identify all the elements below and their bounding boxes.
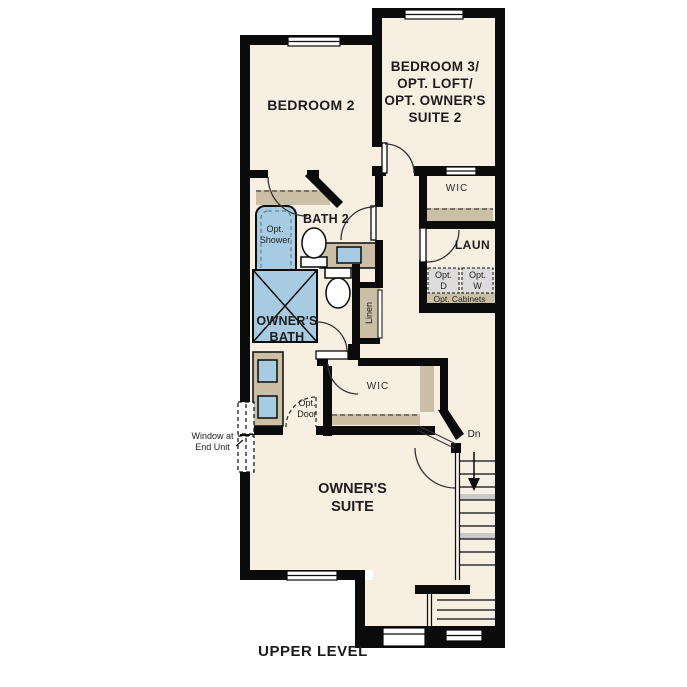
opt-door-label: Opt. Door (290, 398, 324, 420)
wall-wic-top (358, 358, 448, 366)
owners-bath-label: OWNER'S BATH (250, 313, 324, 345)
window-end-unit-label: Window at End Unit (185, 431, 240, 453)
owners-sink-2 (258, 396, 277, 418)
wic-shelf-right (420, 364, 434, 412)
window-landing-1 (383, 628, 425, 646)
wic-shelf-bottom (332, 414, 420, 425)
owners-sink-1 (258, 360, 277, 382)
window-end-unit-upper (238, 402, 254, 434)
bedroom3-label: BEDROOM 3/ OPT. LOFT/ OPT. OWNER'S SUITE… (378, 58, 492, 126)
stairs-down-label: Dn (462, 429, 486, 440)
window-bedroom2-top (288, 37, 340, 46)
wic-upper-opening (446, 167, 476, 175)
window-os-bottom (287, 571, 337, 580)
wall-wic-right (440, 358, 448, 414)
owners-suite-label: OWNER'S SUITE (310, 480, 395, 516)
bath2-sink (337, 247, 361, 263)
floor-plan-upper-level: BEDROOM 2 BEDROOM 3/ OPT. LOFT/ OPT. OWN… (0, 0, 687, 687)
wic-owners-label: WIC (356, 381, 400, 392)
wall-left (240, 35, 250, 580)
opt-dryer-label: Opt. D (428, 270, 459, 292)
bedroom2-closet-shelf (256, 190, 330, 205)
wall-wic-upper-bottom (419, 221, 495, 229)
window-landing-2 (446, 630, 482, 641)
bedroom2-label: BEDROOM 2 (250, 97, 372, 114)
wall-stair-turn (415, 585, 470, 594)
owners-toilet (325, 268, 351, 308)
wall-laundry-bottom (419, 303, 495, 313)
page-title: UPPER LEVEL (248, 643, 378, 660)
opt-cabinets-label: Opt. Cabinets (421, 294, 498, 304)
opt-washer-label: Opt. W (462, 270, 493, 292)
wic-upper-shelf (426, 208, 493, 221)
linen-label: Linen (364, 296, 374, 330)
wic-upper-label: WIC (432, 183, 482, 194)
wall-right (495, 8, 505, 648)
bath2-toilet (301, 228, 327, 267)
window-end-unit-lower (238, 436, 254, 472)
opt-shower-label: Opt. Shower (252, 224, 298, 246)
linen-front (378, 290, 382, 338)
laundry-label: LAUN (450, 238, 495, 252)
wall-wic-bottom (330, 426, 435, 435)
bath2-label: BATH 2 (296, 211, 356, 227)
window-bedroom3-top (405, 10, 463, 19)
